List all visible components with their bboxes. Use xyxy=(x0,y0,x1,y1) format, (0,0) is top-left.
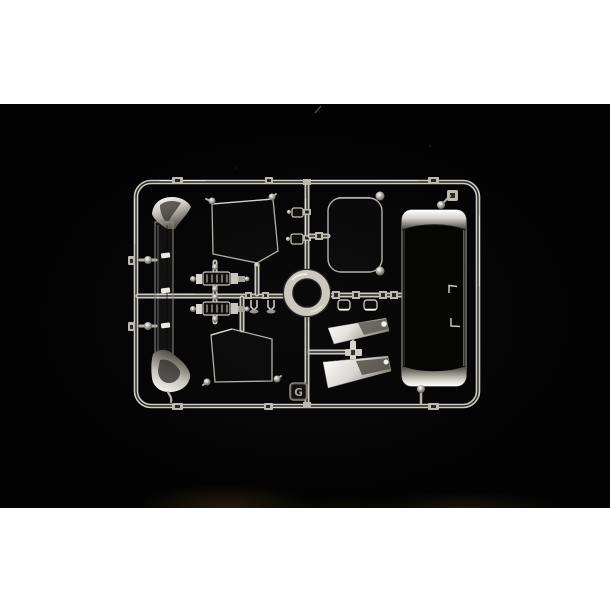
headlight-lens-upper xyxy=(190,264,250,292)
rear-window-part xyxy=(328,192,385,276)
roof-panel-part xyxy=(402,196,466,403)
center-ring-runner xyxy=(283,269,330,316)
mirror-glass-parts xyxy=(310,318,391,388)
photo-artifacts xyxy=(235,106,431,169)
windshield-part xyxy=(140,197,191,402)
sprue-illustration: G xyxy=(0,104,610,508)
page-background: G xyxy=(0,0,610,610)
scratch-mark xyxy=(315,106,321,113)
sprue-letter: G xyxy=(294,387,303,399)
product-photo: G xyxy=(0,104,610,508)
sprue-letter-tag: G xyxy=(290,383,307,400)
